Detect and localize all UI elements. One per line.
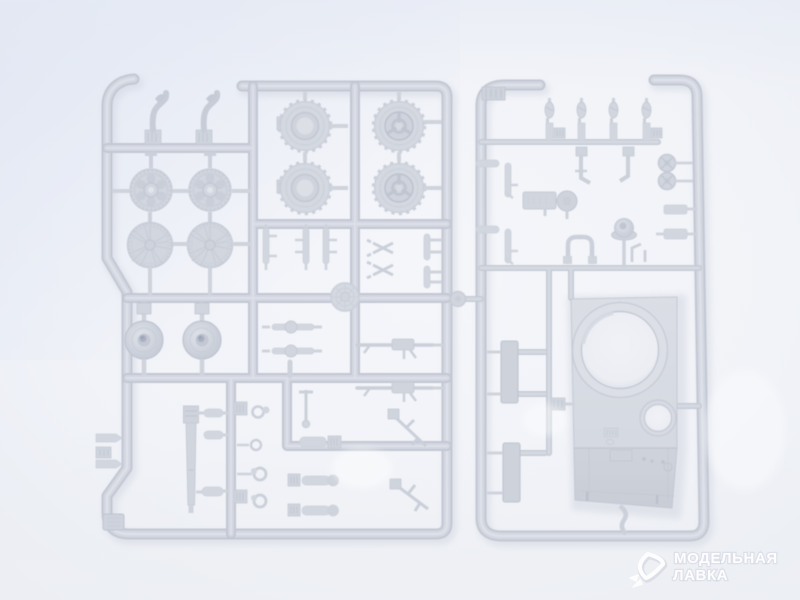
svg-text:МОДЕЛЬНАЯ: МОДЕЛЬНАЯ <box>674 550 778 567</box>
svg-text:ЛАВКА: ЛАВКА <box>673 567 728 584</box>
